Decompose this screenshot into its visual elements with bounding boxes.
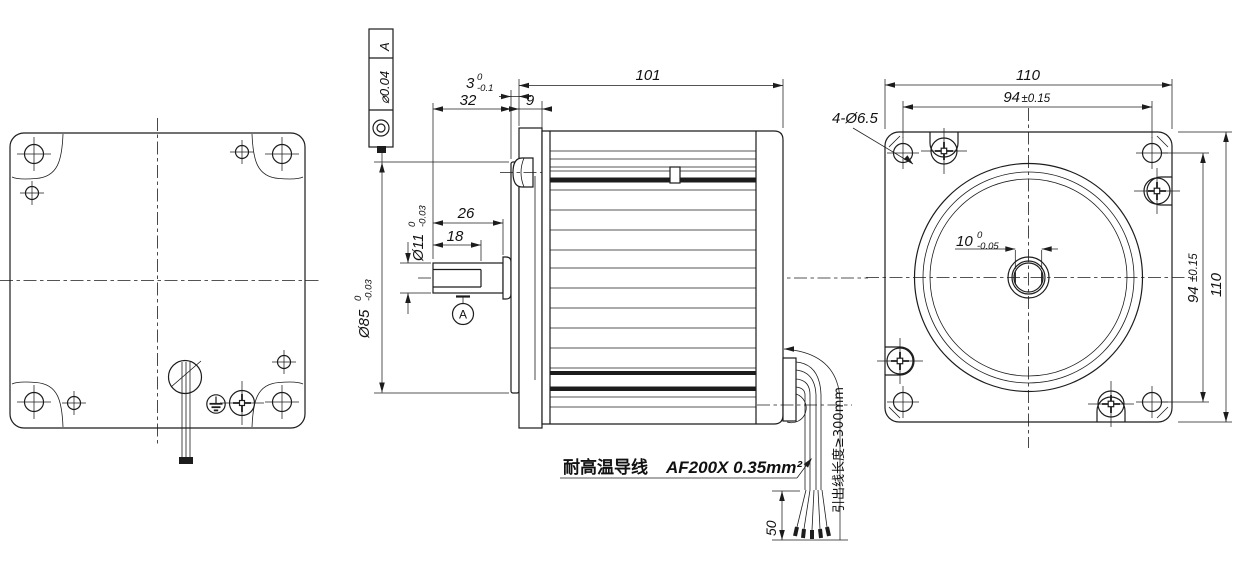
front-view: 110 94 ±0.15 94 ±0.15 110 — [832, 67, 1232, 448]
svg-text:9: 9 — [526, 92, 535, 109]
svg-text:-0.05: -0.05 — [977, 241, 999, 252]
svg-text:50: 50 — [763, 520, 779, 536]
svg-text:0: 0 — [477, 72, 483, 83]
svg-text:-0.03: -0.03 — [418, 205, 429, 227]
shaft — [433, 263, 503, 293]
wire-spec-label: AF200X 0.35mm² — [665, 458, 803, 477]
datum-target: A — [453, 297, 474, 325]
dim-18: 18 — [433, 228, 481, 261]
frame-datum-label: A — [377, 42, 392, 52]
dim-front-height-110: 110 — [1178, 132, 1232, 422]
wire-spec-callout: 耐高温导线 AF200X 0.35mm² — [560, 456, 814, 478]
dim-32: 32 — [433, 90, 511, 259]
svg-text:3: 3 — [466, 75, 475, 92]
datum-label: A — [459, 308, 467, 322]
svg-text:110: 110 — [1208, 272, 1225, 297]
stripped-wire-ends — [795, 490, 829, 539]
svg-text:0: 0 — [407, 221, 418, 227]
dim-9: 9 — [509, 92, 552, 128]
svg-text:94: 94 — [1185, 286, 1202, 303]
frame-tolerance-value: ⌀0.04 — [377, 71, 392, 104]
motor-body — [542, 131, 783, 424]
body-top-feature — [670, 167, 680, 183]
svg-text:0: 0 — [977, 230, 983, 241]
dim-shaft-dia: Ø11 0 -0.03 — [400, 205, 431, 314]
svg-text:±0.15: ±0.15 — [1022, 93, 1051, 105]
rear-view — [0, 118, 320, 464]
wire-material-label: 耐高温导线 — [563, 457, 648, 478]
svg-text:0: 0 — [353, 295, 364, 301]
svg-text:94: 94 — [1003, 89, 1020, 106]
svg-text:4-Ø6.5: 4-Ø6.5 — [832, 110, 879, 127]
motor-dimension-drawing: A ⌀0.04 — [0, 0, 1239, 562]
svg-text:18: 18 — [447, 228, 464, 245]
shaft-collar — [503, 257, 511, 299]
svg-text:Ø85: Ø85 — [356, 309, 373, 339]
dim-front-hole-span-94: 94 ±0.15 — [903, 89, 1152, 138]
drawing-canvas: A ⌀0.04 — [0, 0, 1239, 562]
side-view: A ⌀0.04 — [353, 29, 868, 540]
svg-text:-0.1: -0.1 — [477, 83, 493, 94]
ground-symbol-icon — [207, 395, 225, 413]
svg-text:10: 10 — [956, 233, 973, 250]
lead-length-label: 引出线长度≥300mm — [831, 387, 847, 513]
dim-26: 26 — [433, 205, 503, 255]
dim-101: 101 — [519, 67, 783, 128]
pilot-boss — [511, 162, 519, 393]
svg-text:110: 110 — [1016, 67, 1041, 84]
svg-text:32: 32 — [460, 92, 477, 109]
svg-text:±0.15: ±0.15 — [1188, 253, 1200, 282]
svg-text:26: 26 — [457, 205, 475, 222]
feature-control-frame: A ⌀0.04 — [369, 29, 393, 162]
svg-text:-0.03: -0.03 — [364, 279, 375, 301]
concentricity-symbol-icon — [373, 120, 389, 136]
svg-text:101: 101 — [635, 67, 660, 84]
svg-text:Ø11: Ø11 — [410, 234, 427, 262]
